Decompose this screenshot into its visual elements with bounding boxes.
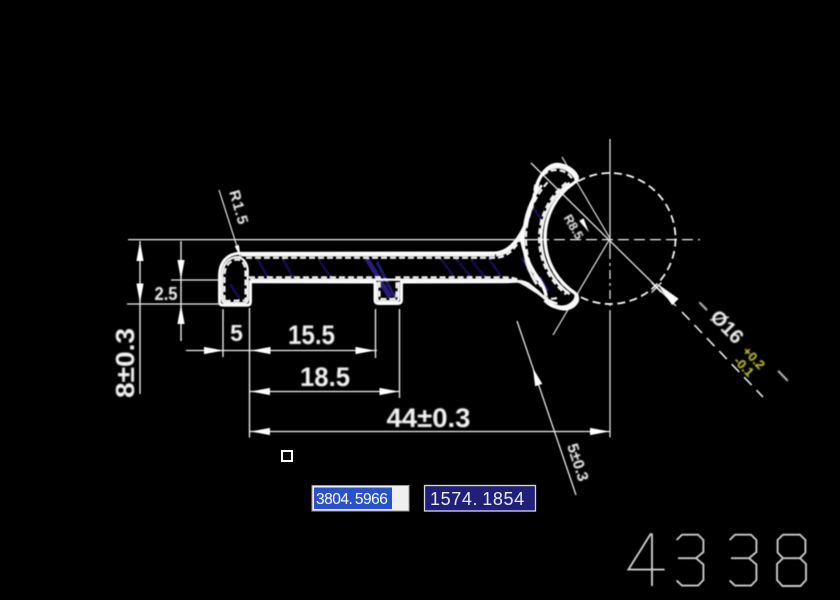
svg-text:44±0.3: 44±0.3 <box>387 403 471 433</box>
svg-text:1574. 1854: 1574. 1854 <box>430 489 525 509</box>
svg-text:18.5: 18.5 <box>300 362 350 392</box>
svg-text:2.5: 2.5 <box>155 284 178 304</box>
svg-text:8±0.3: 8±0.3 <box>110 328 140 398</box>
svg-text:15.5: 15.5 <box>288 320 335 350</box>
svg-text:3804. 5966: 3804. 5966 <box>316 491 387 508</box>
svg-text:5: 5 <box>230 320 243 346</box>
